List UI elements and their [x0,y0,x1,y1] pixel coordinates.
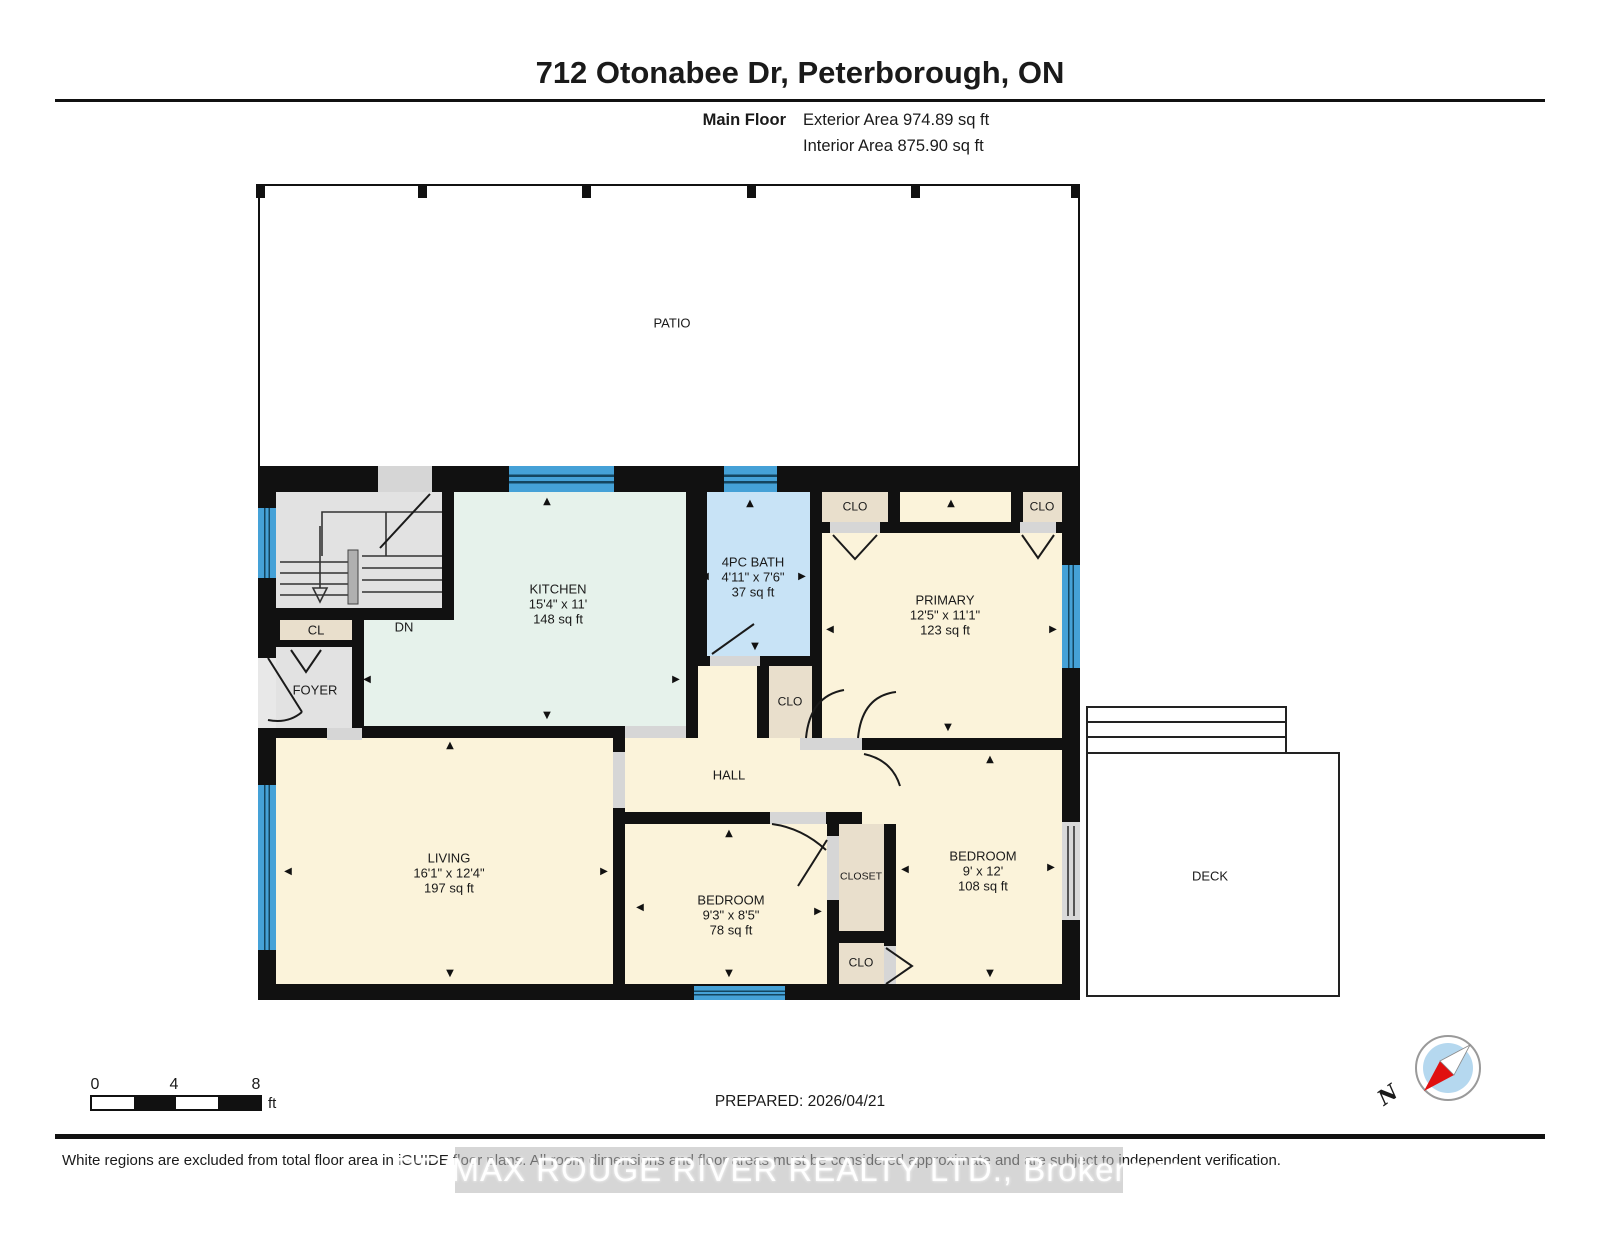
label-cl: CL [308,623,325,638]
primary-floor-strip [900,492,1011,522]
arrow-down-icon: ▼ [446,969,454,979]
label-stairs-dn: DN [395,620,414,635]
scale-start: 0 [91,1076,100,1094]
room-area: 197 sq ft [413,881,484,896]
label-clo: CLO [778,695,803,710]
arrow-up-icon: ▲ [543,497,551,507]
bath-door-gap [710,656,760,666]
arrow-up-icon: ▲ [725,829,733,839]
clo-door-gap [884,946,896,984]
window-living [258,785,276,950]
exterior-area: Exterior Area 974.89 sq ft [803,111,989,130]
closet-door-gap [827,836,839,900]
window-stairs [258,508,276,578]
hall-stub [698,666,757,738]
deck-door-line [1067,826,1069,916]
prepared-date: PREPARED: 2026/04/21 [640,1093,960,1111]
floor-plan-page: 712 Otonabee Dr, Peterborough, ON Main F… [0,0,1600,1237]
room-label-kitchen: KITCHEN 15'4" x 11' 148 sq ft [529,582,588,627]
footer-divider [55,1134,1545,1139]
arrow-down-icon: ▼ [725,969,733,979]
arrow-left-icon: ◀ [701,572,709,582]
room-name: PRIMARY [910,593,980,608]
window-bedroom [694,986,785,1000]
patio-post [1071,184,1080,198]
arrow-right-icon: ▶ [798,572,806,582]
room-label-foyer: FOYER [293,683,338,698]
arrow-right-icon: ▶ [814,907,822,917]
room-name: BEDROOM [697,893,764,908]
bedroom-door-gap [770,812,826,824]
closet-door-gap [1020,522,1056,533]
deck-door-gap [1062,822,1080,920]
patio-door-gap [378,466,432,492]
label-clo: CLO [843,500,868,515]
foyer-living-gap [327,728,362,740]
window-primary [1062,565,1080,668]
room-area: 148 sq ft [529,612,588,627]
arrow-down-icon: ▼ [986,969,994,979]
room-area: 108 sq ft [949,879,1016,894]
closet-divider-wall [827,931,896,943]
interior-area: Interior Area 875.90 sq ft [803,137,984,156]
scale-bar [90,1095,262,1111]
arrow-left-icon: ◀ [363,675,371,685]
window-kitchen [509,466,614,492]
room-area: 37 sq ft [721,585,784,600]
kitchen-hall-threshold [625,726,686,738]
arrow-right-icon: ▶ [600,867,608,877]
room-dims: 16'1" x 12'4" [413,866,484,881]
arrow-down-icon: ▼ [751,642,759,652]
kitchen-floor-ext [364,620,454,726]
patio-post [582,184,591,198]
arrow-up-icon: ▲ [746,499,754,509]
patio-border-top [258,184,1080,186]
room-label-patio: PATIO [653,316,690,331]
label-clo: CLO [849,956,874,971]
arrow-up-icon: ▲ [947,499,955,509]
room-dims: 9'3" x 8'5" [697,908,764,923]
arrow-left-icon: ◀ [826,625,834,635]
room-label-bedroom-mid: BEDROOM 9'3" x 8'5" 78 sq ft [697,893,764,938]
arrow-down-icon: ▼ [944,723,952,733]
room-label-living: LIVING 16'1" x 12'4" 197 sq ft [413,851,484,896]
arrow-up-icon: ▲ [446,741,454,751]
arrow-left-icon: ◀ [636,903,644,913]
patio-post [747,184,756,198]
room-name: KITCHEN [529,582,588,597]
arrow-right-icon: ▶ [1047,863,1055,873]
arrow-right-icon: ▶ [1049,625,1057,635]
room-name: BEDROOM [949,849,1016,864]
window-bath [724,466,777,492]
patio-border-left [258,184,260,466]
scale-end: 8 [252,1076,261,1094]
patio-post [256,184,265,198]
arrow-down-icon: ▼ [543,711,551,721]
patio-border-right [1078,184,1080,466]
deck-door-line [1073,826,1075,916]
room-label-bath: 4PC BATH 4'11" x 7'6" 37 sq ft [721,555,784,600]
patio-post [418,184,427,198]
room-name: 4PC BATH [721,555,784,570]
arrow-left-icon: ◀ [284,867,292,877]
room-name: LIVING [413,851,484,866]
compass-icon [1408,1030,1488,1110]
room-dims: 15'4" x 11' [529,597,588,612]
scale-unit: ft [268,1095,276,1112]
front-door-gap [258,658,276,728]
patio-post [911,184,920,198]
closet-door-gap [830,522,880,533]
header-divider [55,99,1545,102]
room-label-primary: PRIMARY 12'5" x 11'1" 123 sq ft [910,593,980,638]
arrow-left-icon: ◀ [901,865,909,875]
room-area: 78 sq ft [697,923,764,938]
room-dims: 12'5" x 11'1" [910,608,980,623]
primary-door-gap [800,738,862,750]
room-dims: 4'11" x 7'6" [721,570,784,585]
brokerage-watermark: RE/MAX ROUGE RIVER REALTY LTD., Brokerag… [455,1147,1123,1193]
page-title: 712 Otonabee Dr, Peterborough, ON [0,55,1600,91]
room-label-bedroom-right: BEDROOM 9' x 12' 108 sq ft [949,849,1016,894]
room-dims: 9' x 12' [949,864,1016,879]
room-label-deck: DECK [1192,869,1228,884]
compass-north-label: N [1373,1079,1403,1110]
room-label-hall: HALL [713,768,746,783]
room-area: 123 sq ft [910,623,980,638]
living-hall-gap [613,752,625,808]
scale-mid: 4 [170,1076,179,1094]
floor-label: Main Floor [700,111,786,130]
arrow-right-icon: ▶ [672,675,680,685]
label-closet: CLOSET [840,870,882,885]
stairs-area [276,492,442,608]
label-clo: CLO [1030,500,1055,515]
arrow-up-icon: ▲ [986,755,994,765]
